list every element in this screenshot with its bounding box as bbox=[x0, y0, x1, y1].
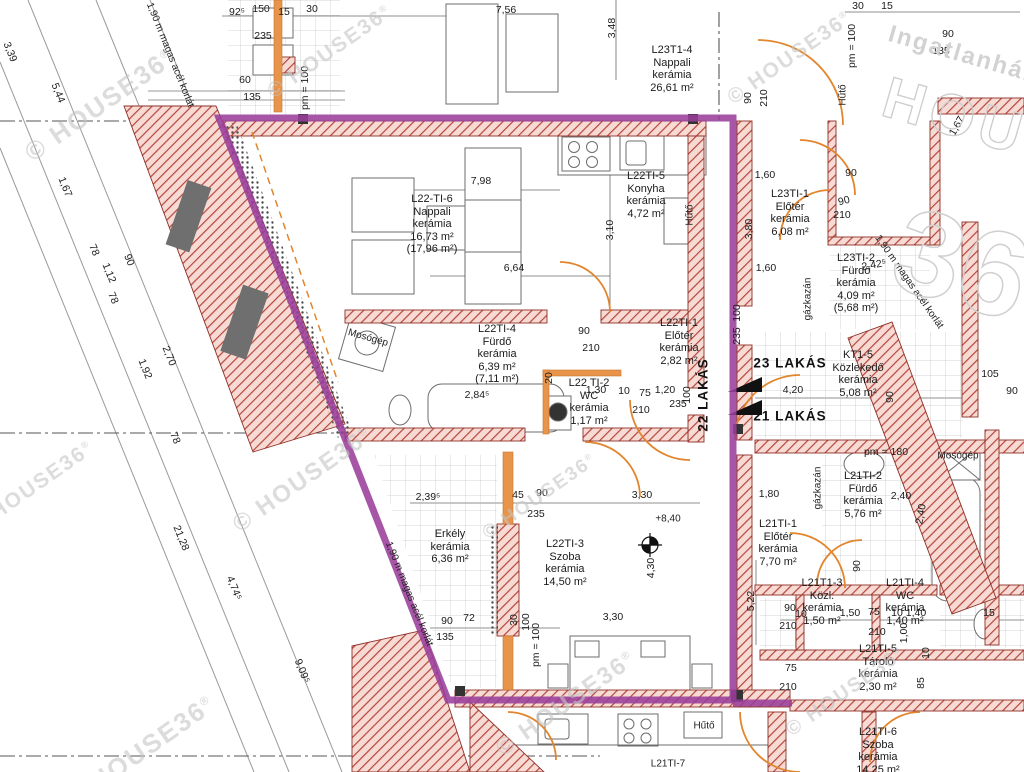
dimension-label: 78 bbox=[105, 290, 121, 305]
dimension-label: 3,39 bbox=[1, 40, 20, 63]
dimension-label: 5,22 bbox=[745, 591, 757, 611]
apartment-number-label: 22 LAKÁS bbox=[696, 358, 711, 431]
room-label-line: kerámia bbox=[834, 277, 879, 290]
room-label: L21TI-4WCkerámia1,40 m² bbox=[885, 577, 924, 627]
room-label-line: 2,82 m² bbox=[659, 355, 698, 368]
dimension-label: 75 bbox=[639, 387, 651, 399]
house36-watermark: © HOUSE36® bbox=[19, 42, 181, 169]
dimension-label: 15 bbox=[278, 6, 290, 18]
dimension-label: 7,98 bbox=[471, 175, 491, 187]
dimension-label: 10 bbox=[891, 607, 903, 619]
annotation-label: Mosógép bbox=[347, 327, 390, 349]
dimension-label: 90 bbox=[851, 560, 863, 572]
annotation-label: Hűtő bbox=[685, 204, 696, 225]
labels-layer: L23T1-4Nappalikerámia26,61 m²L22TI-5Kony… bbox=[0, 0, 1024, 772]
registered-mark: ® bbox=[377, 2, 391, 16]
room-label-line: L21TI-1 bbox=[758, 518, 797, 531]
dimension-label: 100 bbox=[731, 304, 743, 322]
room-label-line: WC bbox=[885, 590, 924, 603]
dimension-label: 1,80 bbox=[759, 488, 779, 500]
room-label-line: kerámia bbox=[475, 348, 519, 361]
dimension-label: 1,60 bbox=[755, 169, 775, 181]
dimension-label: 210 bbox=[779, 620, 797, 632]
dimension-label: 85 bbox=[915, 677, 927, 689]
room-label-line: kerámia bbox=[407, 218, 458, 231]
room-label: L21TI-1Előtérkerámia7,70 m² bbox=[758, 518, 797, 568]
annotation-label: Hűtő bbox=[838, 84, 849, 105]
registered-mark: ® bbox=[356, 424, 371, 440]
dimension-label: 75 bbox=[785, 662, 797, 674]
room-label: L22TI-3Szobakerámia14,50 m² bbox=[543, 538, 586, 588]
annotation-label: Hűtő bbox=[693, 721, 714, 732]
room-label-line: kerámia bbox=[856, 751, 899, 764]
dimension-label: 2,40 bbox=[891, 490, 911, 502]
room-label-line: L23T1-4 bbox=[650, 44, 693, 57]
room-label-line: L23TI-1 bbox=[770, 188, 809, 201]
annotation-label: gázkazán bbox=[803, 278, 814, 321]
registered-mark: ® bbox=[619, 648, 634, 664]
room-label-line: (5,68 m²) bbox=[834, 302, 879, 315]
room-label: L22TI-5Konyhakerámia4,72 m² bbox=[626, 170, 665, 220]
dimension-label: 3,30 bbox=[632, 489, 652, 501]
annotation-label: 1,90 m magas acél korlát bbox=[383, 540, 435, 648]
dimension-label: 150 bbox=[252, 3, 270, 15]
room-label-line: 1,17 m² bbox=[569, 415, 610, 428]
dimension-label: 135 bbox=[436, 631, 454, 643]
dimension-label: 4,20 bbox=[783, 384, 803, 396]
dimension-label: 10 bbox=[795, 608, 807, 620]
room-label-line: (17,96 m²) bbox=[407, 243, 458, 256]
dimension-label: 7,56 bbox=[496, 4, 516, 16]
room-label: L22-TI-6Nappalikerámia16,73 m²(17,96 m²) bbox=[407, 193, 458, 256]
room-label-line: Szoba bbox=[543, 551, 586, 564]
room-label: L21T1-3Közl.kerámia1,50 m² bbox=[802, 577, 843, 627]
dimension-label: 90 bbox=[784, 602, 796, 614]
room-label-line: L21TI-6 bbox=[856, 726, 899, 739]
room-label-line: 5,76 m² bbox=[843, 508, 882, 521]
dimension-label: 20 bbox=[543, 372, 555, 384]
annotation-label: gázkazán bbox=[813, 467, 824, 510]
room-label-line: 6,08 m² bbox=[770, 226, 809, 239]
room-label-line: L22-TI-6 bbox=[407, 193, 458, 206]
room-label-line: 5,08 m² bbox=[832, 387, 883, 400]
room-label-line: Szoba bbox=[856, 739, 899, 752]
house36-watermark: © HOUSE36® bbox=[0, 436, 99, 540]
room-label-line: L21TI-4 bbox=[885, 577, 924, 590]
room-label: L21TI-2Fürdőkerámia5,76 m² bbox=[843, 470, 882, 520]
room-label-line: Közl. bbox=[802, 590, 843, 603]
room-label-line: 16,73 m² bbox=[407, 231, 458, 244]
dimension-label: 2,39⁵ bbox=[416, 491, 441, 503]
house36-watermark: © HOUSE36® bbox=[491, 645, 642, 762]
room-label-line: Fürdő bbox=[475, 336, 519, 349]
annotation-label: +8,40 bbox=[655, 514, 680, 525]
room-label-line: Erkély bbox=[430, 528, 469, 541]
dimension-label: 1,12 bbox=[100, 261, 119, 284]
room-label-line: Előtér bbox=[770, 201, 809, 214]
room-label-line: kerámia bbox=[430, 541, 469, 554]
dimension-label: 3,80 bbox=[743, 219, 755, 239]
dimension-label: 210 bbox=[833, 209, 851, 221]
dimension-label: 235 bbox=[254, 30, 272, 42]
dimension-label: 90 bbox=[1006, 385, 1018, 397]
dimension-label: 90 bbox=[845, 167, 857, 179]
dimension-label: 1,60 bbox=[756, 262, 776, 274]
dimension-label: 5,44 bbox=[49, 81, 68, 104]
dimension-label: 3,48 bbox=[606, 18, 618, 38]
house36-watermark: © HOUSE36® bbox=[228, 421, 379, 538]
dimension-label: 1,67 bbox=[56, 175, 75, 198]
room-label-line: 4,09 m² bbox=[834, 290, 879, 303]
room-label-line: Közlekedő bbox=[832, 362, 883, 375]
room-label-line: 6,36 m² bbox=[430, 553, 469, 566]
dimension-label: 30 bbox=[852, 0, 864, 12]
room-label-line: kerámia bbox=[843, 495, 882, 508]
dimension-label: 210 bbox=[582, 342, 600, 354]
room-label-line: 26,61 m² bbox=[650, 82, 693, 95]
house36-watermark: © HOUSE36® bbox=[59, 689, 221, 772]
dimension-label: 210 bbox=[632, 404, 650, 416]
dimension-label: 90 bbox=[441, 615, 453, 627]
annotation-label: L21TI-7 bbox=[651, 759, 685, 770]
dimension-label: 90 bbox=[837, 194, 851, 208]
room-label: L22TI-1Előtérkerámia2,82 m² bbox=[659, 317, 698, 367]
registered-mark: ® bbox=[891, 643, 904, 656]
room-label-line: Előtér bbox=[659, 330, 698, 343]
dimension-label: 15 bbox=[881, 0, 893, 12]
room-label-line: 7,70 m² bbox=[758, 556, 797, 569]
room-label-line: L22TI-4 bbox=[475, 323, 519, 336]
dimension-label: 3,30 bbox=[603, 611, 623, 623]
room-label: L23T1-4Nappalikerámia26,61 m² bbox=[650, 44, 693, 94]
dimension-label: 72 bbox=[463, 612, 475, 624]
room-label-line: Fürdő bbox=[843, 483, 882, 496]
dimension-label: 90 bbox=[121, 252, 137, 267]
dimension-label: 1,92 bbox=[136, 357, 155, 380]
dimension-label: 105 bbox=[981, 368, 999, 380]
registered-mark: ® bbox=[79, 438, 93, 452]
apartment-number-label: 23 LAKÁS bbox=[753, 356, 826, 371]
room-label-line: kerámia bbox=[626, 195, 665, 208]
dimension-label: 1,40 bbox=[906, 607, 926, 619]
apartment-number-label: 21 LAKÁS bbox=[753, 409, 826, 424]
room-label: L22TI-4Fürdőkerámia6,39 m²(7,11 m²) bbox=[475, 323, 519, 386]
house36-watermark: © HOUSE36® bbox=[479, 449, 602, 544]
dimension-label: 9,09⁵ bbox=[292, 657, 312, 684]
room-label-line: Nappali bbox=[650, 57, 693, 70]
room-label-line: Előtér bbox=[758, 531, 797, 544]
dimension-label: 75 bbox=[868, 606, 880, 618]
dimension-label: 210 bbox=[779, 681, 797, 693]
dimension-label: 135 bbox=[243, 91, 261, 103]
dimension-label: 2,84⁵ bbox=[465, 389, 490, 401]
dimension-label: 3,10 bbox=[604, 220, 616, 240]
dimension-label: 4,30 bbox=[645, 558, 657, 578]
dimension-label: 30 bbox=[306, 3, 318, 15]
dimension-label: pm = 180 bbox=[864, 446, 908, 458]
room-label-line: Konyha bbox=[626, 183, 665, 196]
dimension-label: 21,28 bbox=[171, 524, 192, 553]
dimension-label: 1,50 bbox=[840, 607, 860, 619]
dimension-label: 92⁵ bbox=[229, 6, 245, 18]
annotation-label: Mosógép bbox=[937, 451, 978, 462]
dimension-label: 78 bbox=[167, 430, 183, 445]
dimension-label: 60 bbox=[239, 74, 251, 86]
room-label-line: kerámia bbox=[659, 342, 698, 355]
room-label-line: kerámia bbox=[770, 213, 809, 226]
room-label-line: (7,11 m²) bbox=[475, 373, 519, 386]
room-label-line: Nappali bbox=[407, 206, 458, 219]
registered-mark: ® bbox=[582, 450, 595, 463]
registered-mark: ® bbox=[197, 692, 213, 709]
dimension-label: 2,40 bbox=[913, 503, 928, 525]
room-label-line: L22TI-1 bbox=[659, 317, 698, 330]
room-label-line: kerámia bbox=[650, 69, 693, 82]
room-label: L23TI-1Előtérkerámia6,08 m² bbox=[770, 188, 809, 238]
room-label-line: KT1-5 bbox=[832, 349, 883, 362]
dimension-label: 10 bbox=[920, 647, 932, 659]
room-label-line: kerámia bbox=[802, 602, 843, 615]
dimension-label: 78 bbox=[86, 242, 102, 257]
dimension-label: 235 bbox=[669, 398, 687, 410]
dimension-label: 15 bbox=[983, 607, 995, 619]
room-label-line: kerámia bbox=[832, 374, 883, 387]
room-label-line: 14,25 m² bbox=[856, 764, 899, 772]
room-label-line: L21TI-2 bbox=[843, 470, 882, 483]
floor-plan-canvas: L23T1-4Nappalikerámia26,61 m²L22TI-5Kony… bbox=[0, 0, 1024, 772]
room-label: L21TI-6Szobakerámia14,25 m² bbox=[856, 726, 899, 772]
dimension-label: 10 bbox=[618, 385, 630, 397]
room-label: KT1-5Közlekedőkerámia5,08 m² bbox=[832, 349, 883, 399]
room-label-line: 6,39 m² bbox=[475, 361, 519, 374]
room-label-line: kerámia bbox=[543, 563, 586, 576]
dimension-label: 235 bbox=[731, 327, 743, 345]
room-label-line: L22TI-5 bbox=[626, 170, 665, 183]
dimension-label: 6,64 bbox=[504, 262, 524, 274]
room-label-line: L22TI-3 bbox=[543, 538, 586, 551]
dimension-label: 1,30 bbox=[586, 384, 606, 396]
dimension-label: 4,74⁵ bbox=[224, 574, 244, 601]
room-label-line: 14,50 m² bbox=[543, 576, 586, 589]
dimension-label: 2,70 bbox=[160, 344, 179, 367]
dimension-label: 30 bbox=[508, 614, 520, 626]
dimension-label: 90 bbox=[884, 391, 896, 403]
room-label-line: kerámia bbox=[758, 543, 797, 556]
room-label-line: 4,72 m² bbox=[626, 208, 665, 221]
room-label: Erkélykerámia6,36 m² bbox=[430, 528, 469, 566]
dimension-label: 1,00 bbox=[898, 623, 910, 643]
dimension-label: 210 bbox=[868, 626, 886, 638]
dimension-label: 90 bbox=[578, 325, 590, 337]
dimension-label: 1,20 bbox=[655, 384, 675, 396]
room-label-line: 1,50 m² bbox=[802, 615, 843, 628]
room-label-line: kerámia bbox=[569, 402, 610, 415]
registered-mark: ® bbox=[837, 8, 851, 22]
dimension-label: pm = 100 bbox=[530, 623, 542, 667]
room-label-line: L21T1-3 bbox=[802, 577, 843, 590]
